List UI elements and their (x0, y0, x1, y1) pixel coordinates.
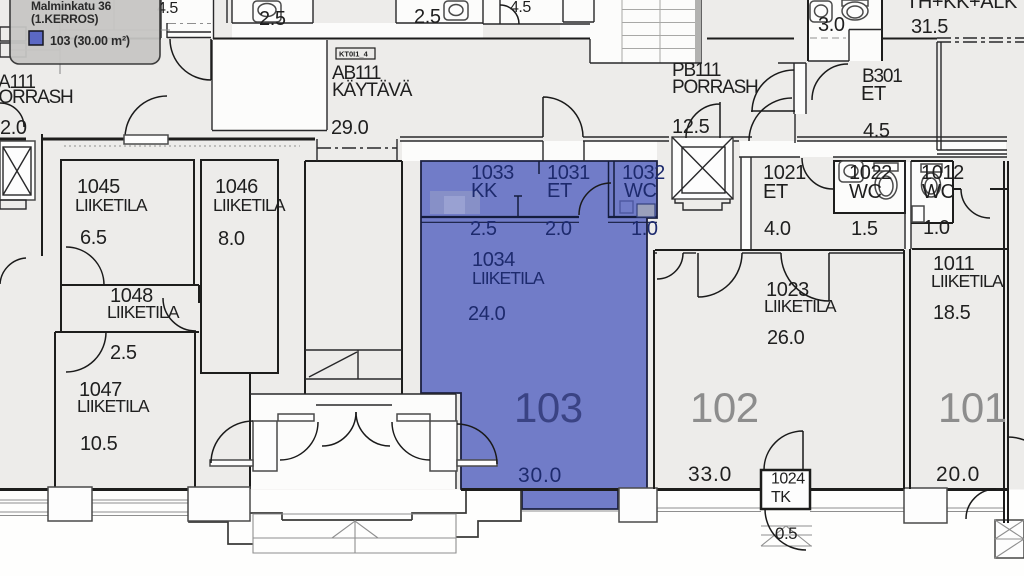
svg-text:TH+KK+ALK: TH+KK+ALK (906, 0, 1018, 13)
svg-text:6.5: 6.5 (80, 227, 107, 249)
svg-text:ET: ET (547, 180, 572, 202)
svg-text:4.5: 4.5 (863, 120, 890, 142)
svg-text:WC: WC (624, 180, 657, 202)
svg-text:WC: WC (849, 181, 882, 203)
svg-text:12.5: 12.5 (672, 116, 710, 138)
svg-text:1.0: 1.0 (923, 217, 950, 239)
svg-text:LIIKETILA: LIIKETILA (931, 271, 1004, 291)
svg-text:33.0: 33.0 (688, 463, 732, 486)
svg-text:ET: ET (861, 83, 886, 105)
svg-text:4.5: 4.5 (510, 0, 531, 16)
svg-text:3.0: 3.0 (818, 14, 845, 36)
svg-text:103: 103 (514, 384, 583, 431)
svg-text:KT0I1_4: KT0I1_4 (339, 50, 369, 59)
svg-text:31.5: 31.5 (911, 16, 948, 38)
svg-text:10.5: 10.5 (80, 433, 118, 455)
svg-text:24.0: 24.0 (468, 303, 506, 325)
svg-text:(1.KERROS): (1.KERROS) (31, 12, 99, 26)
svg-text:LIIKETILA: LIIKETILA (77, 396, 150, 416)
svg-text:29.0: 29.0 (331, 117, 369, 139)
svg-text:PORRASH: PORRASH (0, 87, 73, 108)
svg-text:LIIKETILA: LIIKETILA (213, 195, 286, 215)
svg-text:30.0: 30.0 (518, 464, 562, 487)
svg-text:0.5: 0.5 (775, 524, 797, 543)
svg-text:PORRASH: PORRASH (672, 77, 758, 98)
svg-text:2.5: 2.5 (110, 342, 137, 364)
svg-text:4.0: 4.0 (764, 218, 791, 240)
svg-text:20.0: 20.0 (936, 463, 980, 486)
svg-text:KÄYTÄVÄ: KÄYTÄVÄ (332, 80, 413, 101)
svg-text:8.0: 8.0 (218, 228, 245, 250)
svg-text:1024: 1024 (771, 471, 805, 488)
svg-text:2.5: 2.5 (414, 6, 441, 28)
svg-text:LIIKETILA: LIIKETILA (107, 302, 180, 322)
svg-text:102: 102 (690, 384, 759, 431)
svg-text:2.0: 2.0 (545, 218, 572, 240)
svg-text:2.5: 2.5 (470, 218, 497, 240)
svg-text:WC: WC (922, 181, 955, 203)
svg-text:2.5: 2.5 (259, 8, 286, 30)
svg-text:18.5: 18.5 (933, 302, 971, 324)
svg-text:1.0: 1.0 (631, 218, 658, 240)
svg-text:1.5: 1.5 (851, 218, 878, 240)
svg-text:LIIKETILA: LIIKETILA (472, 268, 545, 288)
svg-text:ET: ET (763, 181, 788, 203)
svg-text:LIIKETILA: LIIKETILA (764, 296, 837, 316)
svg-text:103 (30.00 m²): 103 (30.00 m²) (50, 34, 130, 48)
svg-text:TK: TK (771, 489, 791, 506)
svg-text:2.0: 2.0 (0, 117, 27, 139)
svg-text:101: 101 (938, 384, 1007, 431)
svg-text:KK: KK (471, 180, 498, 202)
svg-text:LIIKETILA: LIIKETILA (75, 195, 148, 215)
svg-text:26.0: 26.0 (767, 327, 805, 349)
